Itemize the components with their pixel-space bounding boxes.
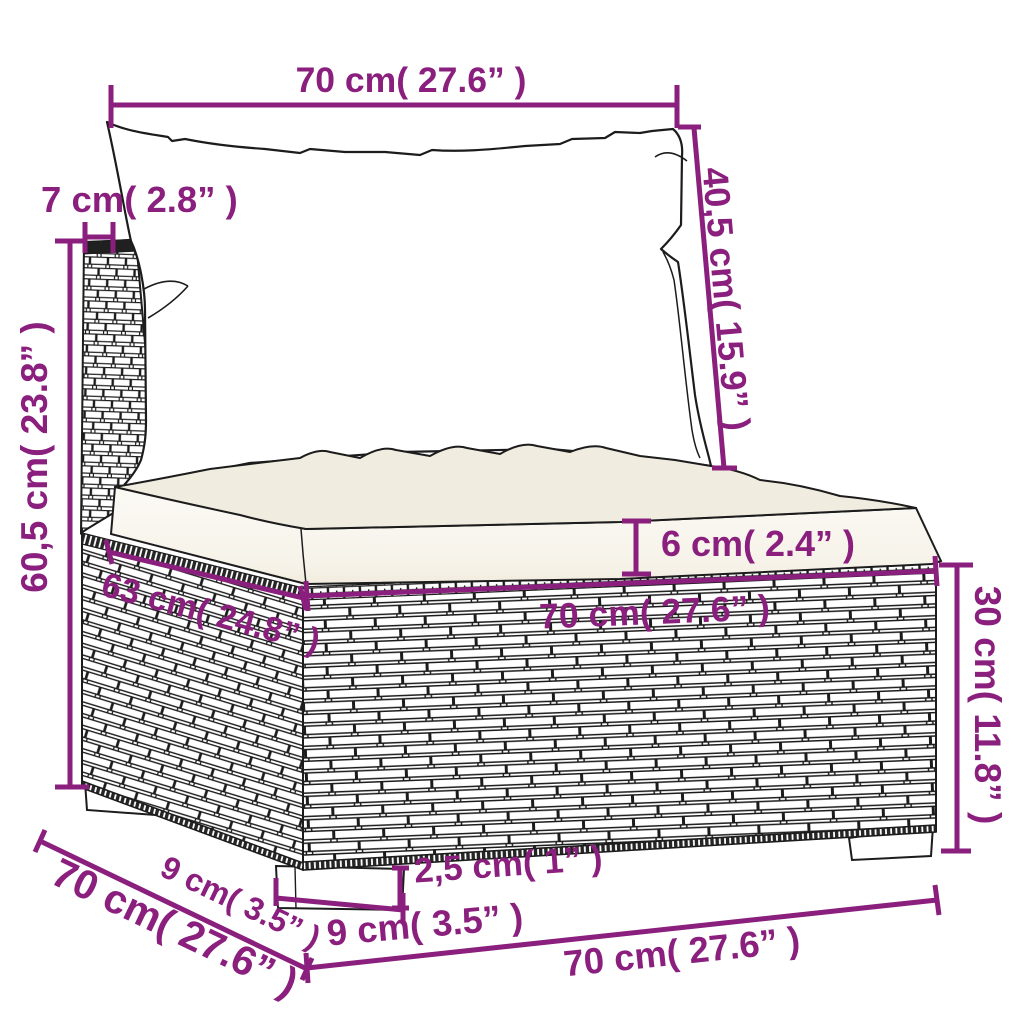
svg-text:70 cm( 27.6” ): 70 cm( 27.6” ) — [296, 60, 527, 100]
svg-text:60,5 cm( 23.8” ): 60,5 cm( 23.8” ) — [14, 321, 55, 592]
svg-text:7 cm( 2.8” ): 7 cm( 2.8” ) — [41, 179, 238, 220]
svg-text:30 cm( 11.8” ): 30 cm( 11.8” ) — [967, 586, 1008, 825]
svg-text:6 cm( 2.4” ): 6 cm( 2.4” ) — [661, 523, 855, 564]
